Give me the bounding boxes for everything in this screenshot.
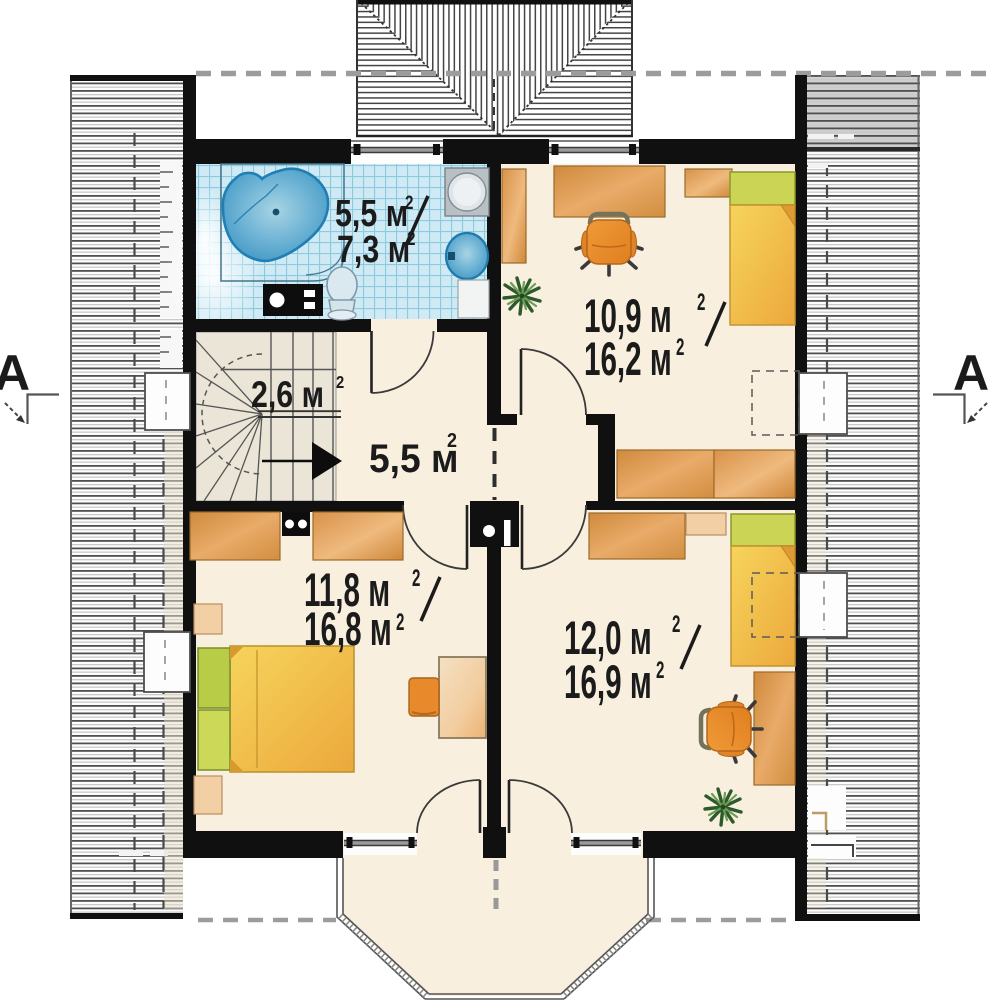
svg-text:16,9 м: 16,9 м <box>564 656 652 709</box>
svg-text:2: 2 <box>447 430 457 452</box>
svg-text:2: 2 <box>336 373 344 393</box>
svg-text:2: 2 <box>412 566 420 592</box>
svg-text:7,3 м: 7,3 м <box>337 229 410 271</box>
svg-text:2: 2 <box>405 191 413 213</box>
svg-text:2: 2 <box>676 335 684 361</box>
svg-text:16,2 м: 16,2 м <box>584 333 672 386</box>
svg-text:A: A <box>953 345 989 401</box>
svg-text:2: 2 <box>672 612 680 638</box>
svg-text:2: 2 <box>697 290 705 316</box>
svg-text:A: A <box>0 345 30 401</box>
svg-text:2,6 м: 2,6 м <box>251 374 324 416</box>
svg-text:2: 2 <box>396 610 404 636</box>
svg-text:5,5 м: 5,5 м <box>369 437 459 482</box>
svg-text:16,8 м: 16,8 м <box>304 603 392 656</box>
svg-text:2: 2 <box>656 658 664 684</box>
